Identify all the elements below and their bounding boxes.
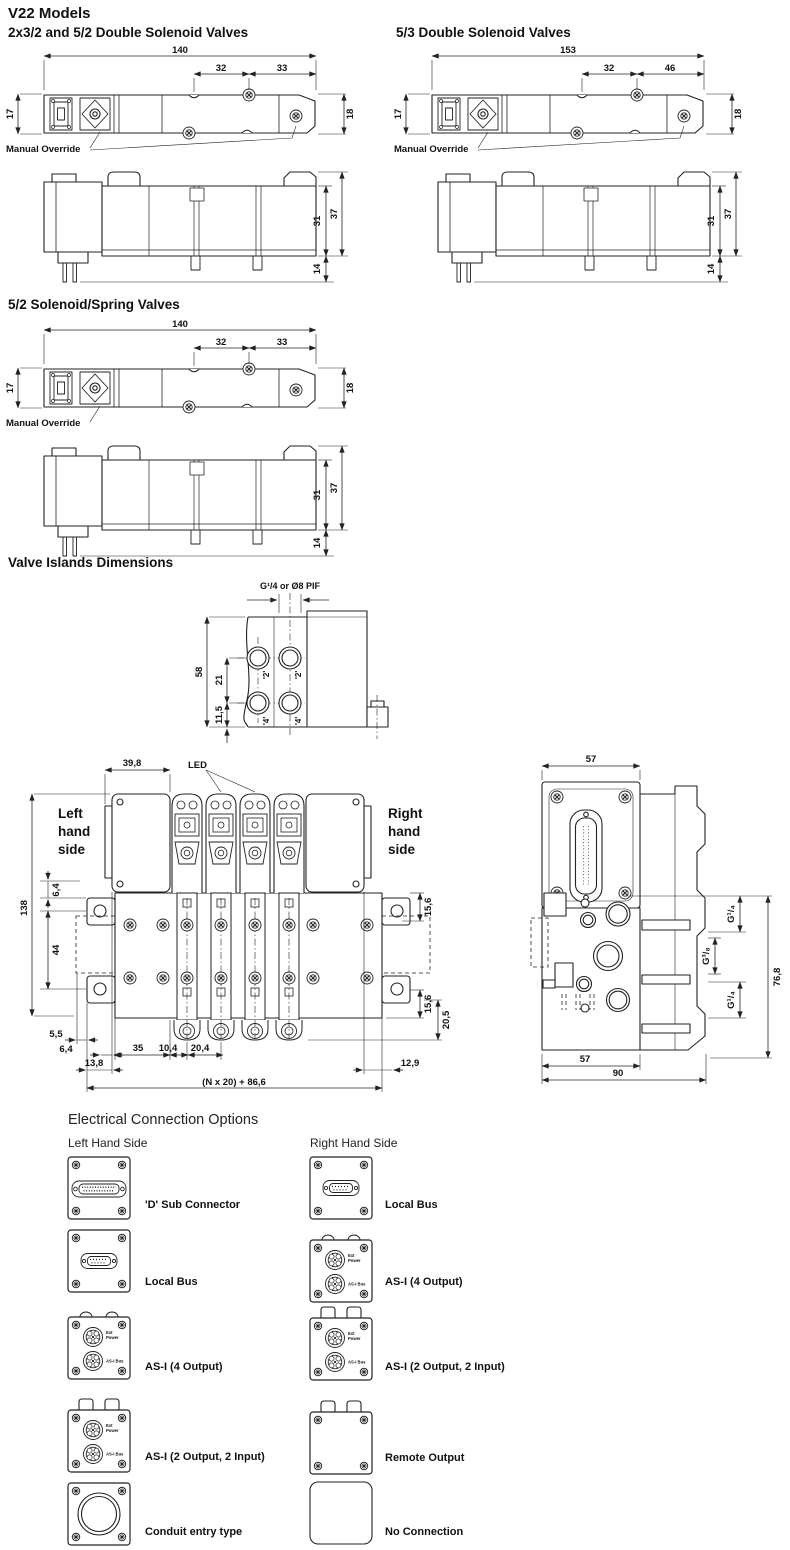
dim-58: 58 [194,667,205,678]
elec-label-left-localbus: Local Bus [145,1276,198,1288]
dim-side-pins: 14 [706,263,717,274]
dim-15-6-bottom: 15,6 [423,995,434,1014]
dsub9-icon [81,1254,117,1269]
connector-box [310,1318,372,1380]
svg-text:hand: hand [58,824,90,839]
dim-h-left: 17 [393,109,404,120]
right-hand-side-label: Right hand side [388,806,423,857]
dim-h-left: 17 [5,383,16,394]
dim-39-8: 39,8 [123,758,142,769]
dim-5-5: 5,5 [49,1029,63,1040]
elec-box-right-asi22: Ext Power AS-I Bus [308,1304,374,1382]
svg-text:Left: Left [58,806,83,821]
blank-plate [310,1482,372,1544]
valve-side-body [438,172,710,282]
top-tabs [321,1307,361,1318]
elec-box-left-localbus [66,1216,132,1294]
dim-side-body: 31 [312,489,323,500]
elec-label-left-dsub: 'D' Sub Connector [145,1199,240,1211]
dsub9-icon [323,1181,359,1196]
dim-side-pins: 14 [312,537,323,548]
section-title-2x32: 2x3/2 and 5/2 Double Solenoid Valves [8,25,248,40]
elec-box-right-remote [308,1398,374,1476]
valve-side-body [44,172,316,282]
ext-power-label: Power [106,1428,119,1433]
asi-bus-label: AS-I Bus [348,1360,366,1365]
asi-connector-icon [326,1275,345,1294]
connector-box [68,1317,130,1379]
ext-power-label: Power [106,1335,119,1340]
asi-connector-icon [326,1329,345,1348]
right-end-cap [306,794,371,892]
dim-seg2: 33 [277,63,288,74]
dim-57-top: 57 [586,754,597,765]
island-end-body [237,593,388,739]
valve-c-top-view: 140 32 33 17 18 Manual Override [4,314,360,436]
connector-box [310,1240,372,1302]
elec-label-right-none: No Connection [385,1526,463,1538]
elec-box-right-localbus [308,1143,374,1221]
connector-box [310,1412,372,1474]
top-bumps [322,1235,360,1240]
dim-side-total: 37 [329,209,340,220]
dim-overall: 153 [560,45,576,56]
dim-side-total: 37 [329,483,340,494]
asi-connector-icon [326,1353,345,1372]
dim-20-5: 20,5 [441,1010,452,1029]
dim-side-body: 31 [706,215,717,226]
elec-label-left-asi4: AS-I (4 Output) [145,1361,223,1373]
ext-power-label: Power [348,1336,361,1341]
island-end-view: G¹/4 or Ø8 PIF 58 21 11,5 '2' '2' '4' '4… [185,575,415,760]
dim-10-4: 10,4 [159,1043,178,1054]
island-front-view: 39,8 LED 138 6,4 44 15,6 15,6 20,5 5,5 6… [20,748,490,1100]
elec-box-left-conduit [66,1469,132,1547]
valve-a-side-view: 31 37 14 [4,162,356,290]
dim-side-total: 37 [723,209,734,220]
dim-seg2: 33 [277,337,288,348]
page-title: V22 Models [8,5,91,22]
led-label: LED [188,760,207,771]
dim-seg1: 32 [216,337,227,348]
dim-total: (N x 20) + 86,6 [202,1077,266,1088]
section-title-53: 5/3 Double Solenoid Valves [396,25,571,40]
left-hand-side-label: Left hand side [58,806,90,857]
elec-box-right-asi4: Ext Power AS-I Bus [308,1226,374,1304]
elec-label-left-asi22: AS-I (2 Output, 2 Input) [145,1451,265,1463]
asi-bus-label: AS-I Bus [106,1452,124,1457]
port-label-4: '4' [262,717,271,725]
dim-13-8: 13,8 [85,1058,104,1069]
elec-label-right-asi22: AS-I (2 Output, 2 Input) [385,1361,505,1373]
asi-connector-icon [326,1251,345,1270]
connector-box [68,1410,130,1472]
elec-box-left-dsub [66,1143,132,1221]
dim-g14-top: G¹/₄ [726,905,737,923]
valve-b-top-view: 153 32 46 17 18 Manual Override [392,40,748,162]
port-label-4: '4' [294,717,303,725]
valve-a-top-view: 140 32 33 17 18 Manual Override [4,40,360,162]
ext-power-label: Power [348,1258,361,1263]
svg-text:hand: hand [388,824,420,839]
valve-side-body [44,446,316,556]
top-bumps [80,1312,118,1317]
dim-seg1: 32 [604,63,615,74]
dim-overall: 140 [172,45,188,56]
elec-box-left-asi22: Ext Power AS-I Bus [66,1396,132,1474]
svg-text:side: side [388,842,416,857]
section-title-52: 5/2 Solenoid/Spring Valves [8,297,180,312]
port-label-2: '2' [294,671,303,679]
port-label-2: '2' [262,671,271,679]
conduit-entry-icon [82,1497,117,1532]
asi-connector-icon [84,1352,103,1371]
dim-seg2: 46 [665,63,676,74]
manual-override-label: Manual Override [6,144,80,155]
dim-h-left: 17 [5,109,16,120]
dim-6-4: 6,4 [51,883,62,897]
valve-c-side-view: 31 37 14 [4,436,356,564]
dim-overall: 140 [172,319,188,330]
dim-6-4b: 6,4 [59,1044,73,1055]
svg-text:Right: Right [388,806,423,821]
electrical-title: Electrical Connection Options [68,1112,258,1128]
elec-label-right-localbus: Local Bus [385,1199,438,1211]
svg-text:side: side [58,842,86,857]
dim-h-right: 18 [345,109,356,120]
dim-90: 90 [613,1068,624,1079]
dim-44: 44 [51,944,62,955]
left-end-cap [105,794,170,892]
valve-b-side-view: 31 37 14 [398,162,750,290]
dim-side-body: 31 [312,215,323,226]
dim-g38: G³/₈ [701,947,712,965]
asi-connector-icon [84,1445,103,1464]
elec-label-left-conduit: Conduit entry type [145,1526,242,1538]
manual-override-label: Manual Override [394,144,468,155]
dim-57-bottom: 57 [580,1054,591,1065]
top-tabs [321,1401,361,1412]
valve-body [44,89,315,139]
island-side-view: 57 G¹/₄ G³/₈ G¹/₄ 76,8 57 90 [530,748,790,1086]
dim-12-9: 12,9 [401,1058,420,1069]
dim-20-4: 20,4 [191,1043,210,1054]
dim-side-pins: 14 [312,263,323,274]
manual-override-label: Manual Override [6,418,80,429]
dim-15-6-top: 15,6 [423,898,434,917]
elec-box-left-asi4: Ext Power AS-I Bus [66,1303,132,1381]
dim-h-right: 18 [733,109,744,120]
dim-35: 35 [133,1043,144,1054]
top-tabs [79,1399,119,1410]
asi-bus-label: AS-I Bus [348,1282,366,1287]
dim-seg1: 32 [216,63,227,74]
asi-connector-icon [84,1421,103,1440]
dim-21: 21 [214,674,225,685]
dim-h-right: 18 [345,383,356,394]
dsub25-icon [72,1181,126,1197]
valve-body [44,363,315,413]
thread-label: G¹/4 or Ø8 PIF [260,581,321,591]
asi-connector-icon [84,1328,103,1347]
dim-11-5: 11,5 [214,705,225,724]
side-view-body [531,782,705,1050]
elec-label-right-asi4: AS-I (4 Output) [385,1276,463,1288]
elec-box-right-none [308,1468,374,1546]
dim-g14-bottom: G¹/₄ [726,991,737,1009]
asi-bus-label: AS-I Bus [106,1359,124,1364]
dim-76-8: 76,8 [772,968,783,987]
valve-body [432,89,703,139]
elec-label-right-remote: Remote Output [385,1452,464,1464]
dim-138: 138 [19,900,30,916]
